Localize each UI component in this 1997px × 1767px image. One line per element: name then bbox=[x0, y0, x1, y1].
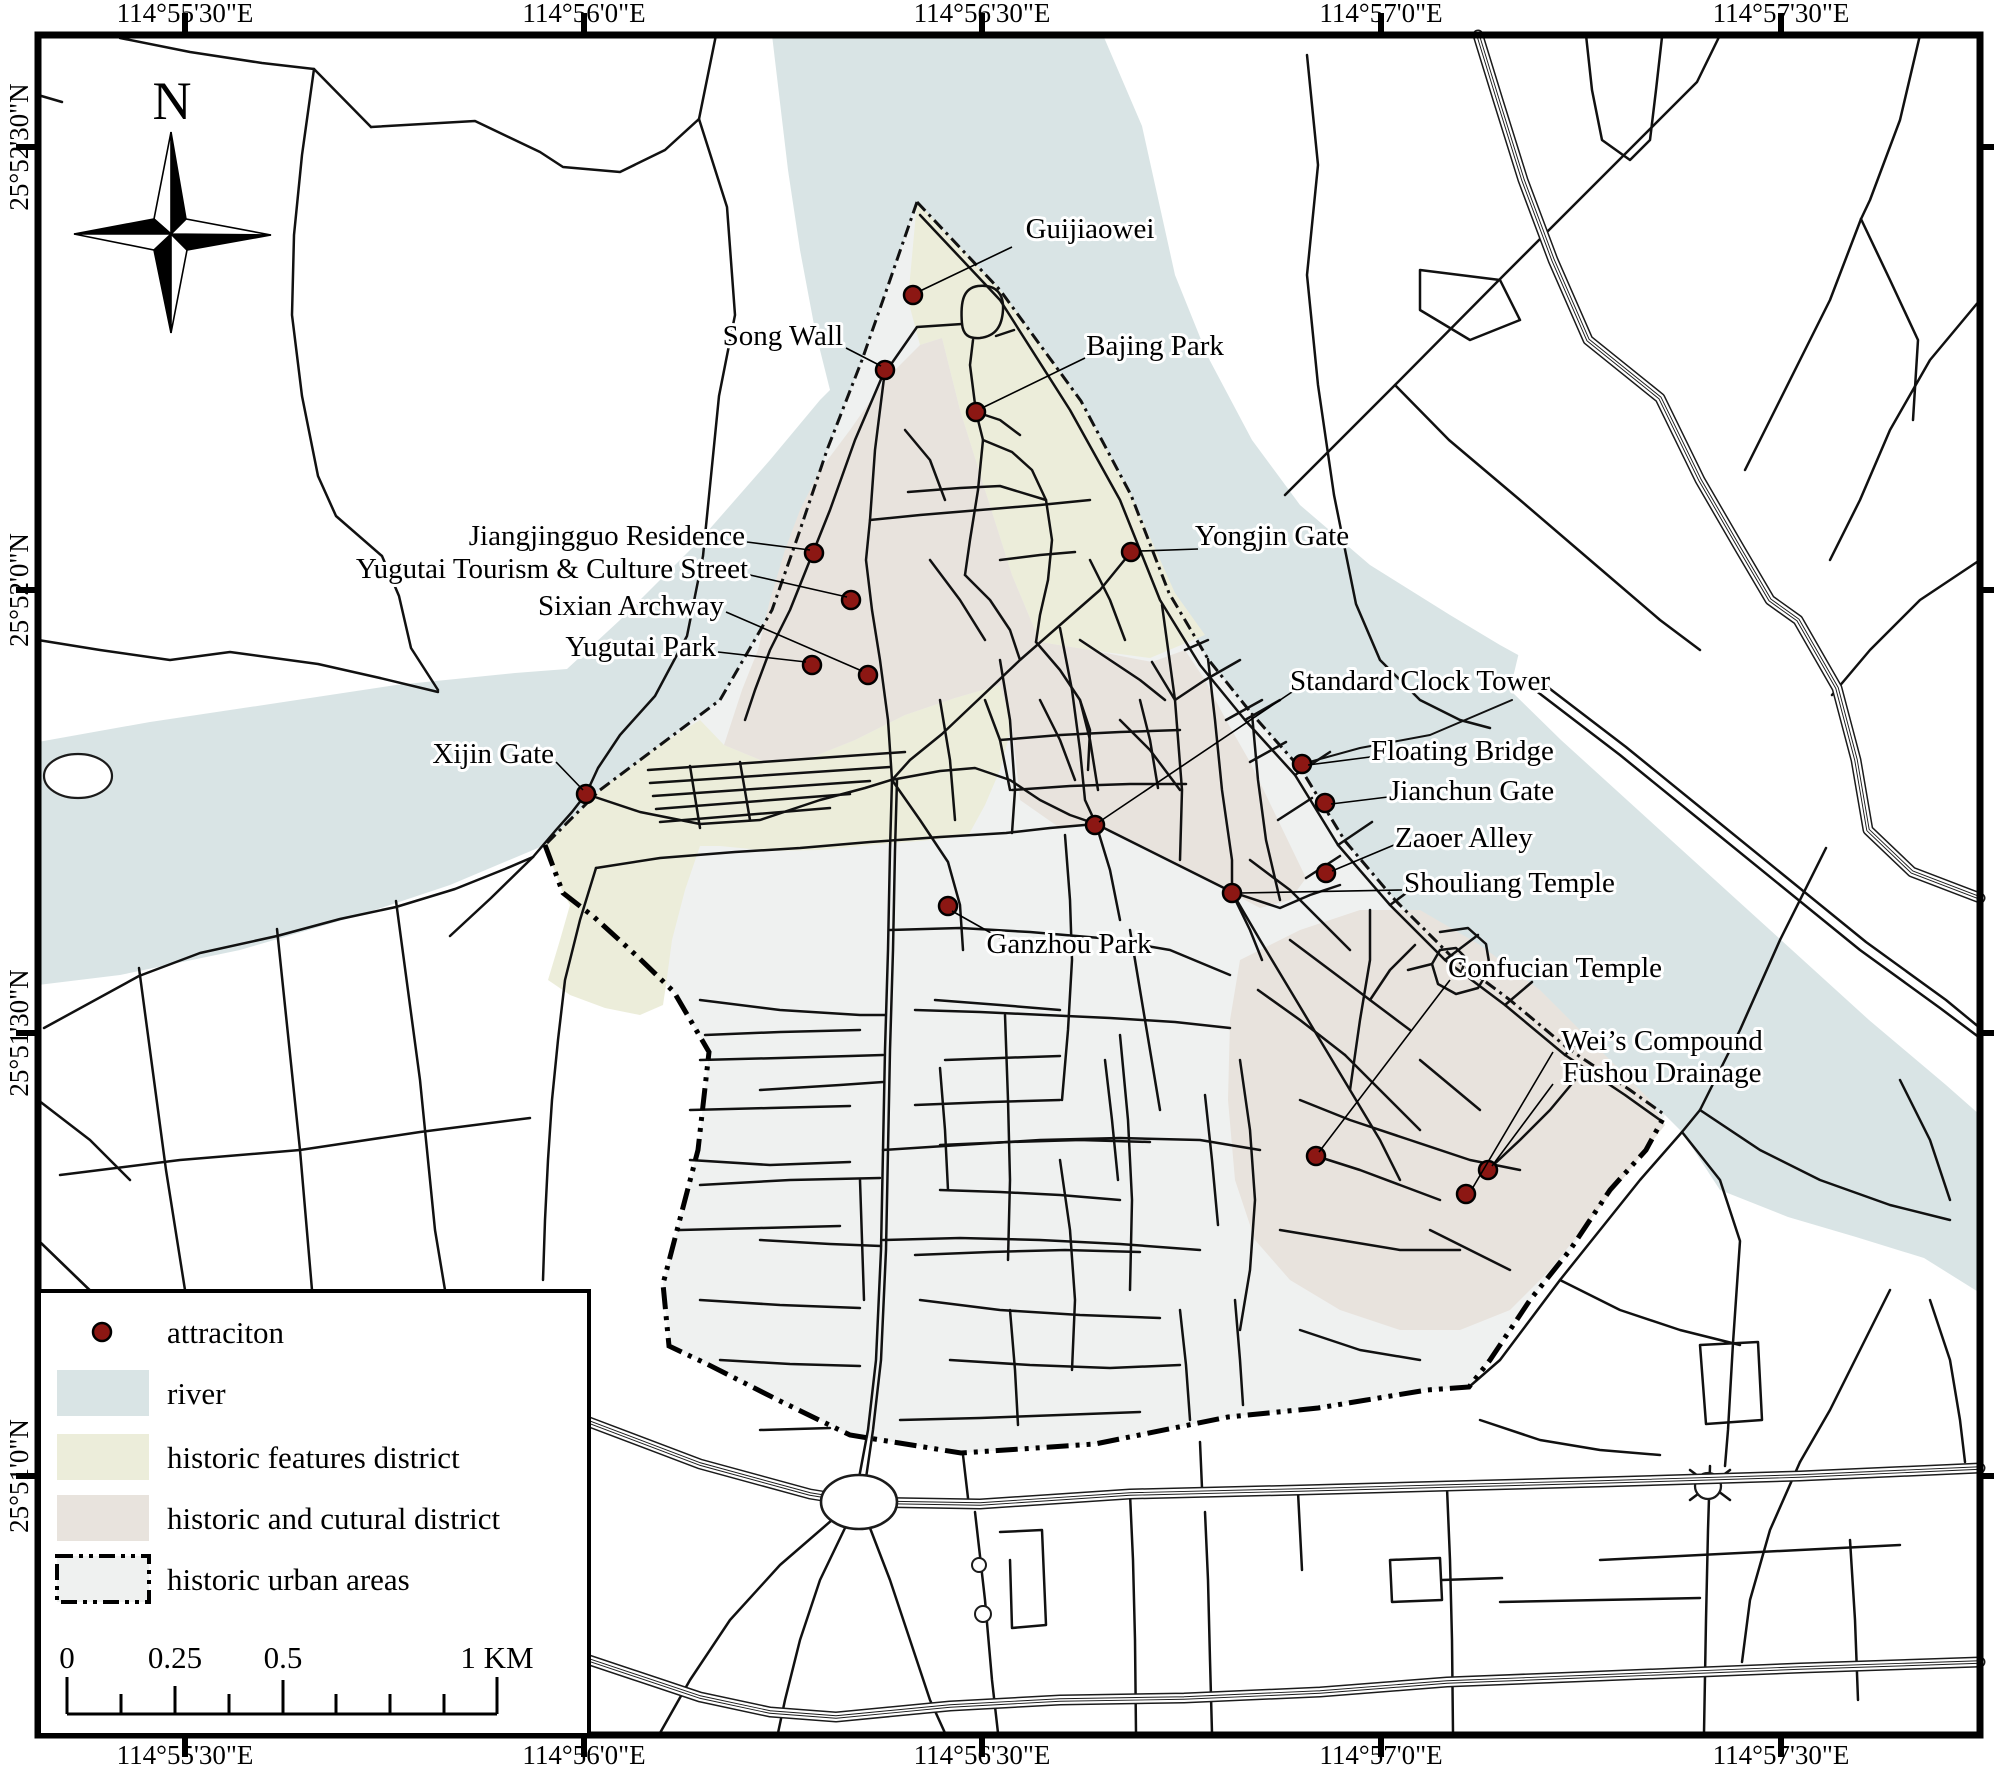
svg-text:Standard Clock Tower: Standard Clock Tower bbox=[1290, 665, 1550, 697]
svg-text:historic features district: historic features district bbox=[167, 1440, 460, 1475]
svg-text:Yugutai Park: Yugutai Park bbox=[565, 631, 716, 663]
svg-text:25°52'0"N: 25°52'0"N bbox=[4, 533, 34, 647]
svg-text:114°55'30"E: 114°55'30"E bbox=[117, 0, 254, 28]
svg-text:river: river bbox=[167, 1376, 226, 1411]
svg-text:Floating Bridge: Floating Bridge bbox=[1371, 735, 1554, 767]
svg-text:N: N bbox=[153, 71, 192, 131]
svg-text:historic and cutural district: historic and cutural district bbox=[167, 1501, 501, 1536]
svg-text:0.5: 0.5 bbox=[264, 1640, 303, 1675]
svg-text:1 KM: 1 KM bbox=[460, 1640, 533, 1675]
svg-text:Bajing Park: Bajing Park bbox=[1086, 330, 1224, 362]
svg-text:25°51'30"N: 25°51'30"N bbox=[4, 969, 34, 1096]
svg-text:historic urban areas: historic urban areas bbox=[167, 1562, 410, 1597]
svg-text:Shouliang Temple: Shouliang Temple bbox=[1404, 867, 1615, 899]
svg-text:Guijiaowei: Guijiaowei bbox=[1026, 213, 1155, 245]
svg-text:Zaoer Alley: Zaoer Alley bbox=[1395, 822, 1533, 854]
svg-text:Jianchun Gate: Jianchun Gate bbox=[1389, 775, 1554, 807]
svg-text:114°56'30"E: 114°56'30"E bbox=[914, 0, 1051, 28]
svg-text:114°55'30"E: 114°55'30"E bbox=[117, 1740, 254, 1767]
svg-text:25°51'0"N: 25°51'0"N bbox=[4, 1419, 34, 1533]
svg-text:114°57'30"E: 114°57'30"E bbox=[1713, 1740, 1850, 1767]
svg-text:114°56'0"E: 114°56'0"E bbox=[522, 1740, 645, 1767]
svg-text:114°57'0"E: 114°57'0"E bbox=[1319, 0, 1442, 28]
svg-text:Fushou Drainage: Fushou Drainage bbox=[1563, 1057, 1762, 1089]
svg-text:114°56'30"E: 114°56'30"E bbox=[914, 1740, 1051, 1767]
svg-text:attraciton: attraciton bbox=[167, 1315, 285, 1350]
svg-text:Wei’s Compound: Wei’s Compound bbox=[1561, 1025, 1763, 1057]
svg-text:Song Wall: Song Wall bbox=[723, 320, 843, 352]
svg-text:Jiangjingguo Residence: Jiangjingguo Residence bbox=[469, 520, 745, 552]
svg-text:114°56'0"E: 114°56'0"E bbox=[522, 0, 645, 28]
svg-text:0.25: 0.25 bbox=[148, 1640, 202, 1675]
svg-text:Ganzhou Park: Ganzhou Park bbox=[986, 928, 1152, 960]
svg-text:0: 0 bbox=[59, 1640, 75, 1675]
svg-text:114°57'30"E: 114°57'30"E bbox=[1713, 0, 1850, 28]
svg-text:Sixian Archway: Sixian Archway bbox=[538, 590, 725, 622]
svg-text:25°52'30"N: 25°52'30"N bbox=[4, 83, 34, 210]
svg-text:Xijin Gate: Xijin Gate bbox=[432, 738, 554, 770]
svg-text:Yugutai Tourism & Culture Stre: Yugutai Tourism & Culture Street bbox=[356, 553, 748, 585]
svg-text:114°57'0"E: 114°57'0"E bbox=[1319, 1740, 1442, 1767]
svg-text:Yongjin Gate: Yongjin Gate bbox=[1195, 520, 1349, 552]
svg-text:Confucian Temple: Confucian Temple bbox=[1448, 952, 1662, 984]
